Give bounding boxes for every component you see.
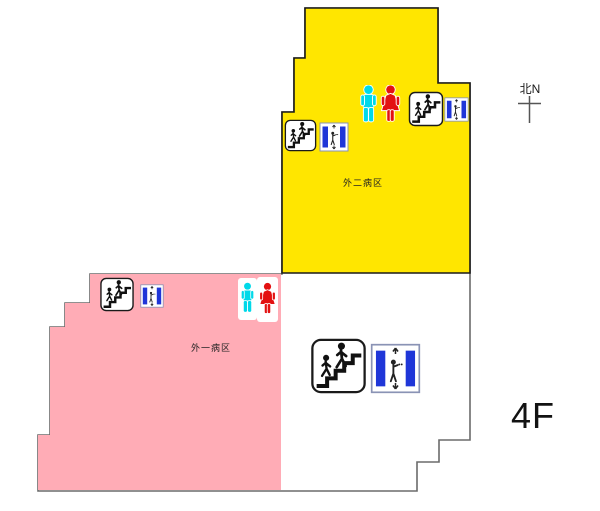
ward-1-label: 外一病区: [191, 342, 231, 353]
stairs-icon: [101, 278, 133, 310]
stairs-icon: [312, 340, 364, 392]
ward-2-label: 外二病区: [343, 177, 383, 188]
male-toilet-icon: [242, 283, 254, 312]
north-cross-icon: [518, 96, 541, 123]
stairs-icon: [285, 120, 315, 150]
compass: 北N: [518, 82, 541, 123]
elevator-icon: [372, 345, 420, 393]
floorplan-svg: 外二病区 外一病区 北N 4F: [0, 0, 600, 511]
compass-label: 北N: [520, 82, 541, 96]
floorplan-canvas: 外二病区 外一病区 北N 4F: [0, 0, 600, 511]
floor-label: 4F: [511, 395, 555, 436]
elevator-icon: [320, 123, 348, 151]
male-toilet-icon: [361, 85, 376, 121]
elevator-icon: [445, 98, 468, 121]
elevator-icon: [141, 285, 163, 307]
stairs-icon: [410, 93, 443, 126]
